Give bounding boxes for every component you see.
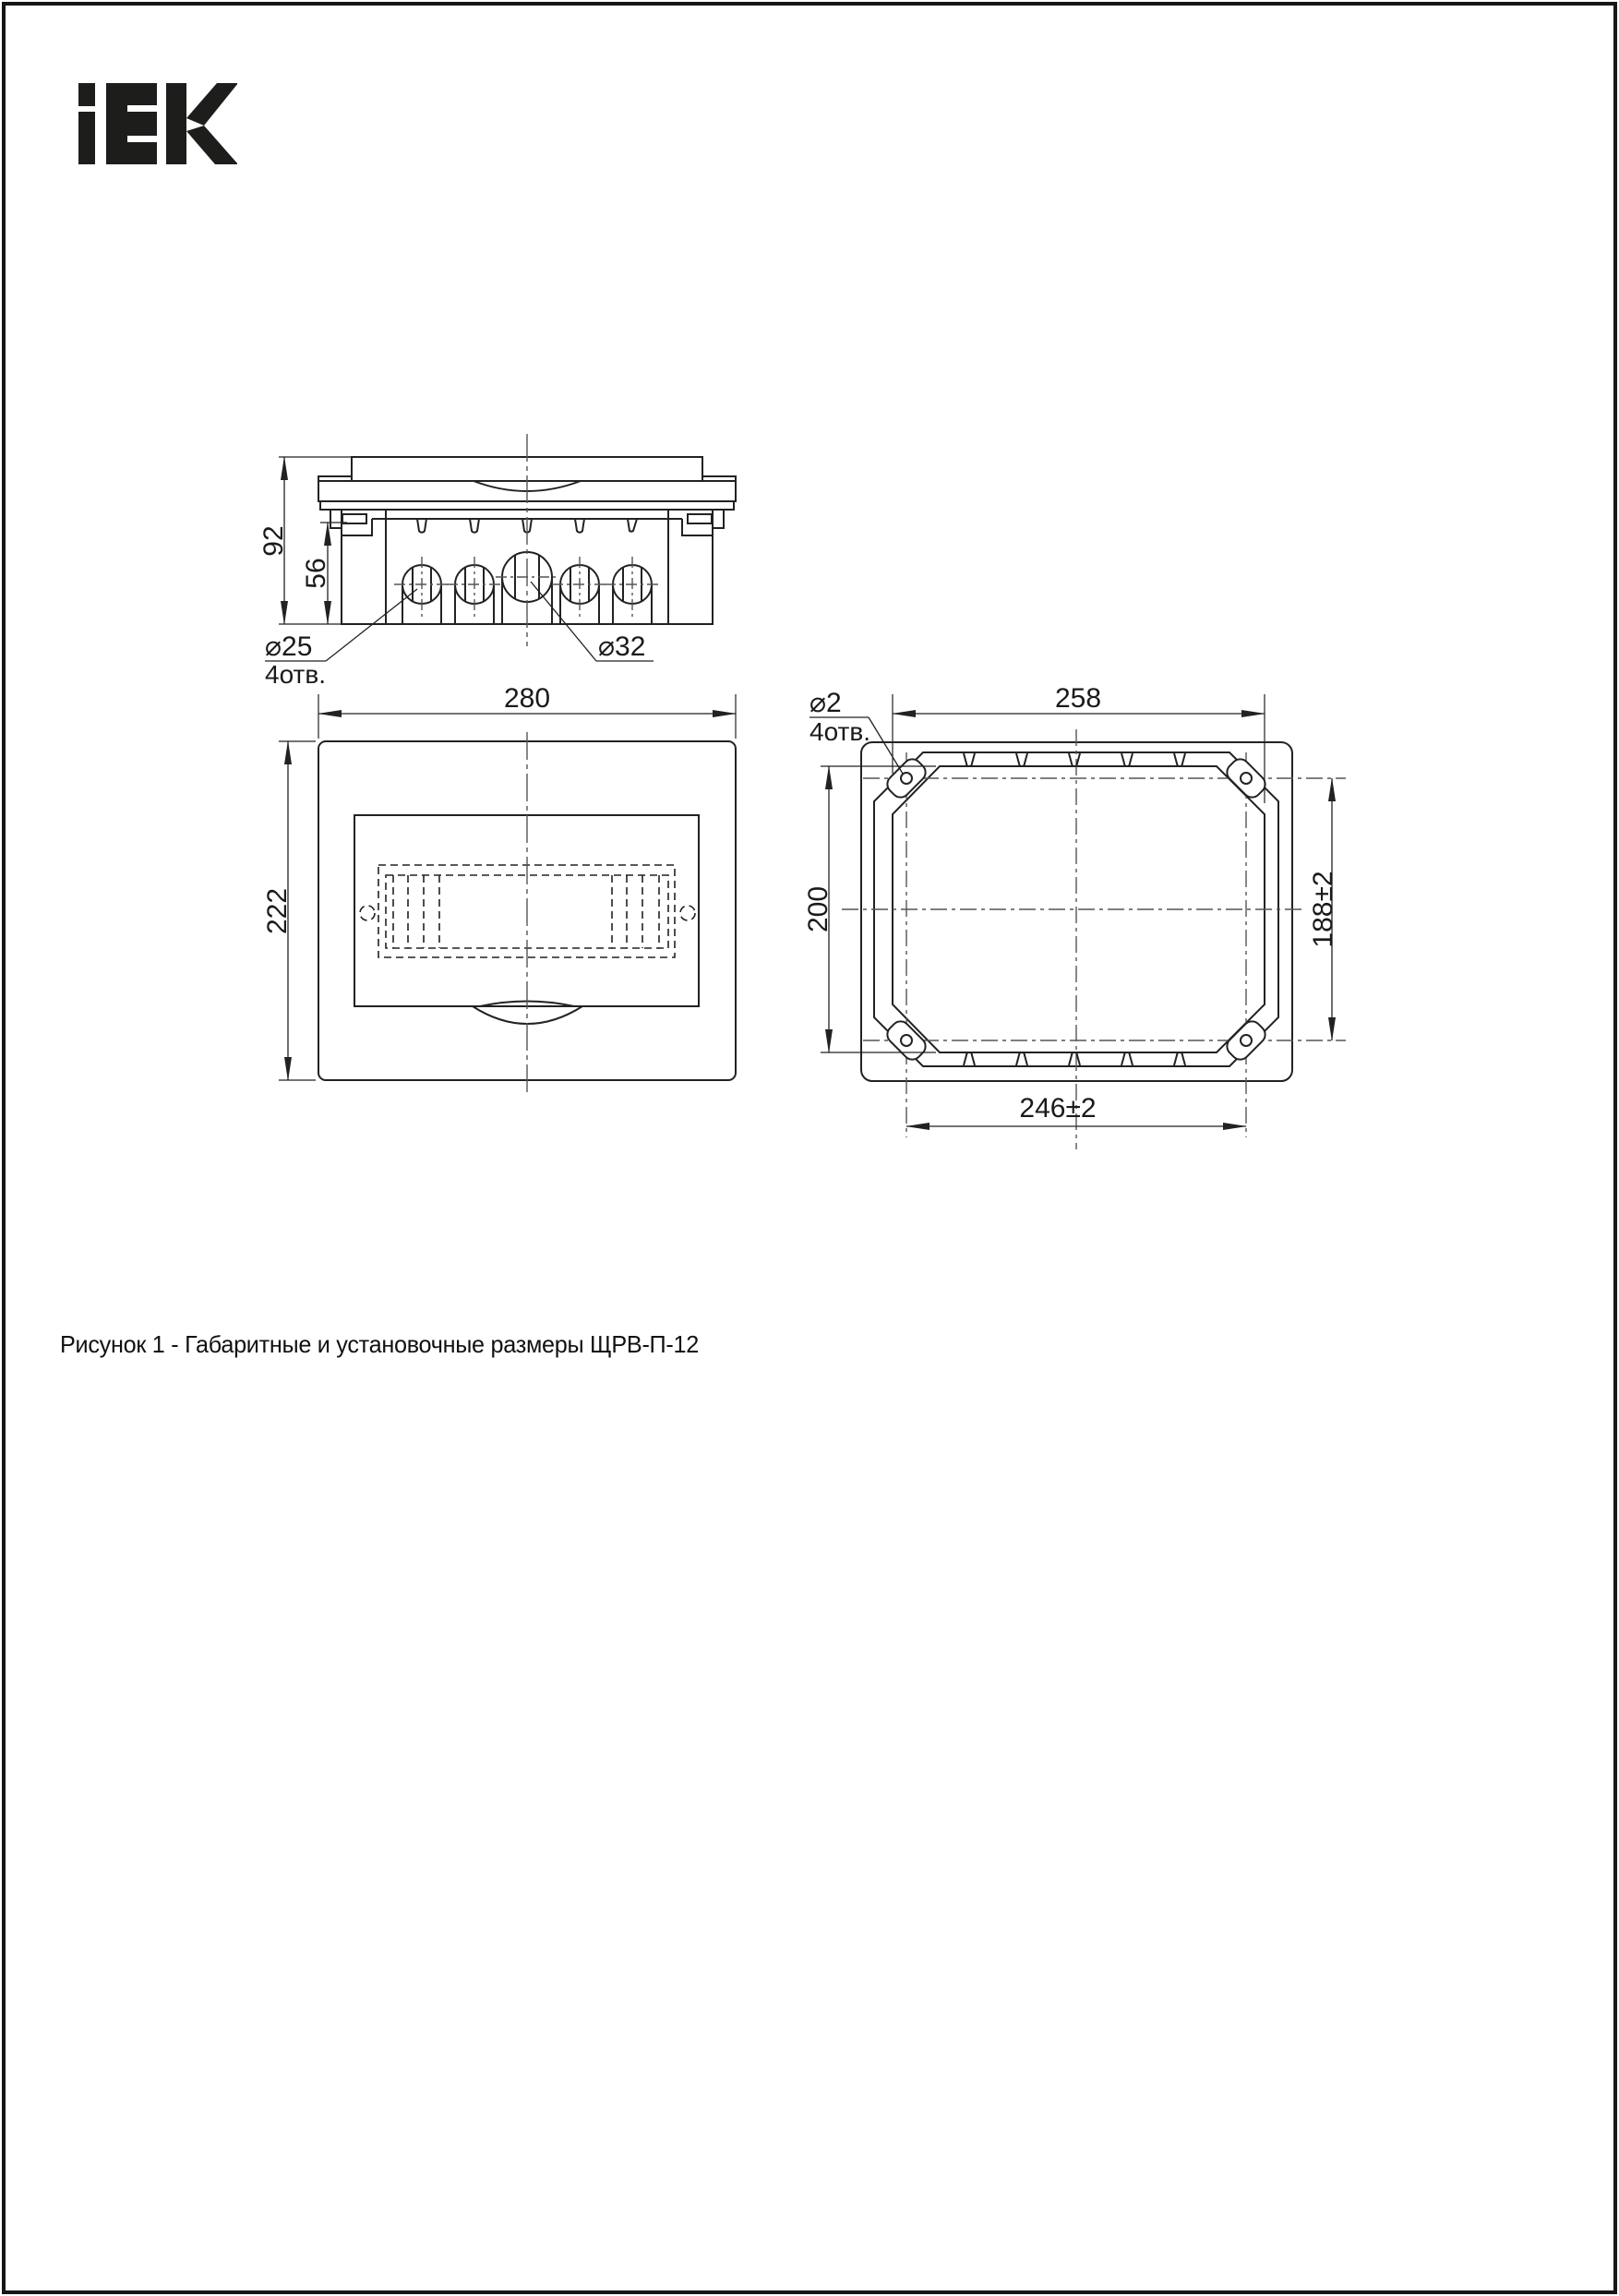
dim-front-height-222: 222 xyxy=(262,888,293,934)
dim-top-height-56: 56 xyxy=(301,558,331,588)
label-knockout-large-dia: ⌀32 xyxy=(598,631,645,662)
label-mount-hole-count: 4отв. xyxy=(809,717,870,746)
dim-rear-width-258: 258 xyxy=(1055,683,1101,714)
label-mount-hole-dia: ⌀2 xyxy=(809,688,842,718)
label-knockout-small-count: 4отв. xyxy=(265,660,326,689)
label-knockout-small-dia: ⌀25 xyxy=(265,631,312,662)
front-view xyxy=(279,694,736,1097)
dimension-drawing: 92 56 ⌀25 4отв. ⌀32 xyxy=(0,0,1619,2296)
figure-caption: Рисунок 1 - Габаритные и установочные ра… xyxy=(60,1330,699,1359)
document-page: 92 56 ⌀25 4отв. ⌀32 xyxy=(0,0,1619,2296)
dim-front-width-280: 280 xyxy=(504,683,550,714)
dim-rear-height-200: 200 xyxy=(803,886,833,932)
dim-rear-mount-246: 246±2 xyxy=(1019,1093,1096,1124)
top-view xyxy=(265,434,736,661)
dim-rear-mount-188: 188±2 xyxy=(1308,871,1338,947)
rear-view xyxy=(809,694,1346,1149)
dim-top-height-92: 92 xyxy=(258,525,289,556)
